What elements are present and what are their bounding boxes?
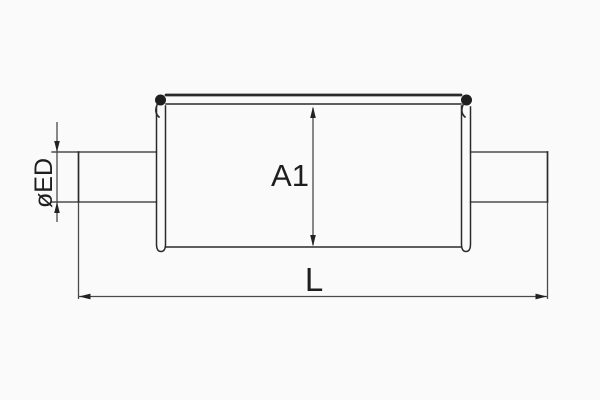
- right-rolled-bead: [461, 95, 472, 106]
- a1-arrow-up: [310, 107, 316, 119]
- muffler-dimension-diagram: øED A1 L: [0, 0, 600, 400]
- dimension-oed: øED: [30, 122, 60, 222]
- left-end-cap: [155, 95, 166, 252]
- inlet-pipe: [52, 152, 157, 202]
- left-flange-outline: [157, 106, 166, 252]
- dimension-label-a1: A1: [271, 158, 309, 193]
- outlet-pipe: [471, 152, 548, 202]
- dimension-label-oed: øED: [30, 158, 58, 208]
- oed-arrow-down: [54, 141, 60, 152]
- right-bead-hook: [462, 105, 465, 117]
- l-arrow-left: [79, 294, 91, 300]
- dimension-a1: A1: [271, 107, 316, 247]
- right-end-cap: [461, 95, 472, 252]
- l-arrow-right: [536, 294, 548, 300]
- a1-arrow-down: [310, 235, 316, 247]
- technical-drawing-canvas: øED A1 L: [0, 0, 600, 400]
- right-flange-outline: [462, 106, 471, 252]
- dimension-label-l: L: [305, 261, 323, 298]
- left-rolled-bead: [155, 95, 166, 106]
